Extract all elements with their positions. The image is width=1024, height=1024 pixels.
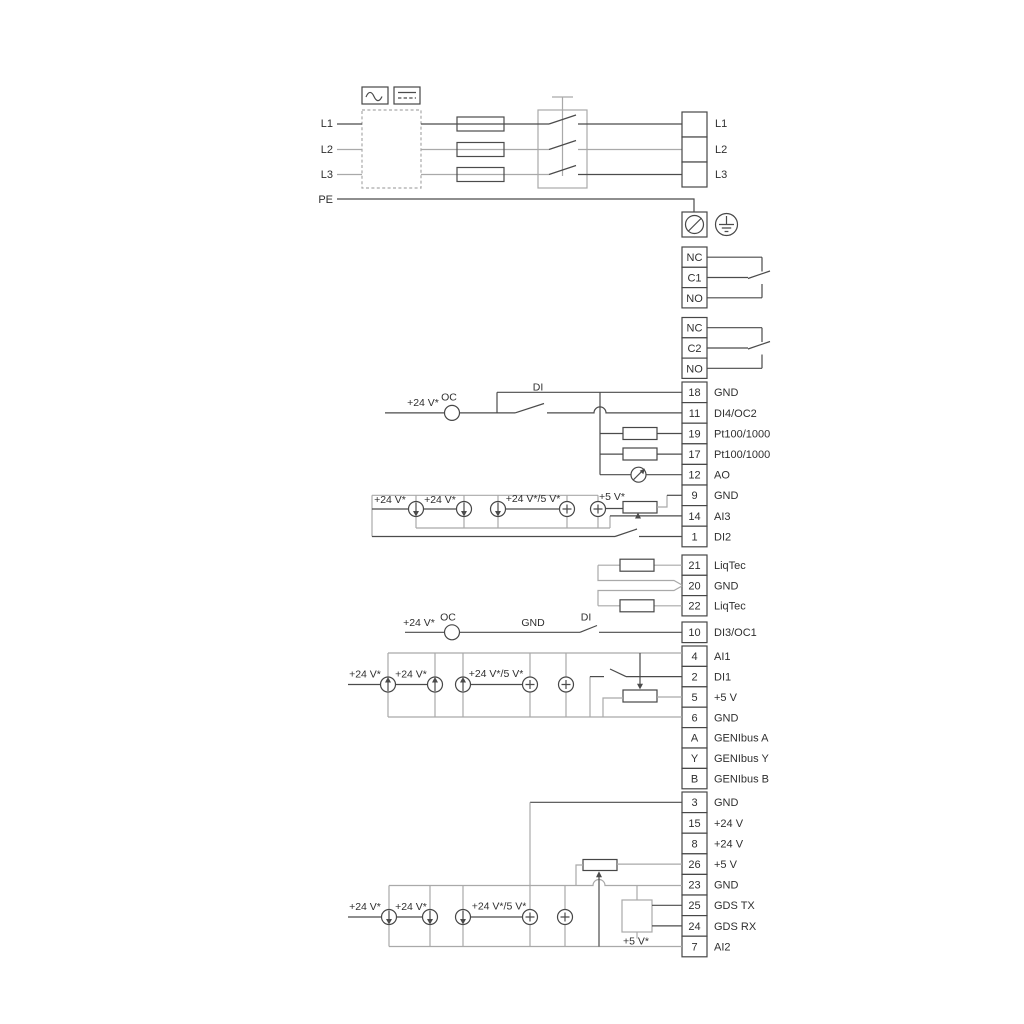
plus24-label: +24 V*	[403, 617, 435, 629]
terminal-number: 7	[691, 941, 697, 953]
terminal-label: DI1	[714, 672, 731, 684]
plus24-label: +24 V*	[374, 494, 406, 506]
current-source-icon	[457, 502, 472, 517]
terminal-box	[682, 137, 707, 162]
terminal-label: GND	[714, 490, 739, 502]
terminal-number: 20	[688, 580, 700, 592]
terminal-number: NC	[687, 252, 703, 264]
terminal-number: 5	[691, 692, 697, 704]
terminal-label: GND	[714, 580, 739, 592]
terminal-label: +24 V	[714, 818, 744, 830]
terminal-number: 10	[688, 627, 700, 639]
current-source-icon	[423, 910, 438, 925]
di-label: DI	[581, 612, 592, 624]
mains-terminal-block: L1 L2 L3	[682, 112, 727, 187]
terminal-label: GDS RX	[714, 921, 757, 933]
di-label: DI	[533, 382, 544, 394]
plus5-label: +5 V*	[623, 936, 649, 948]
terminal-label: AO	[714, 470, 730, 482]
rfi-filter-box	[362, 110, 421, 188]
terminal-number: 18	[688, 387, 700, 399]
terminal-number: A	[691, 733, 699, 745]
potentiometer-icon	[623, 690, 657, 702]
open-collector-icon	[445, 405, 460, 420]
plus24-5-label: +24 V*/5 V*	[506, 493, 561, 505]
terminal-label: L2	[715, 144, 727, 156]
terminal-label: LiqTec	[714, 601, 746, 613]
current-source-icon	[491, 502, 506, 517]
plus24-label: +24 V*	[395, 669, 427, 681]
plus24-label: +24 V*	[395, 901, 427, 913]
plus24-label: +24 V*	[349, 669, 381, 681]
terminal-label: GND	[714, 797, 739, 809]
terminal-number: 3	[691, 797, 697, 809]
voltage-source-icon	[560, 502, 575, 517]
terminal-number: 26	[688, 859, 700, 871]
terminal-number: 1	[691, 531, 697, 543]
ac-symbol-box	[362, 87, 388, 104]
plus24-label: +24 V*	[407, 397, 439, 409]
voltage-source-icon	[523, 677, 538, 692]
earth-ground-icon	[716, 214, 738, 236]
resistor-icon	[623, 428, 657, 440]
terminal-label: DI4/OC2	[714, 408, 757, 420]
terminal-label: L3	[715, 169, 727, 181]
voltage-source-icon	[523, 910, 538, 925]
terminal-number: 22	[688, 601, 700, 613]
terminal-label: AI3	[714, 511, 731, 523]
terminal-number: 8	[691, 838, 697, 850]
pe-screw-terminal-icon	[682, 212, 707, 237]
terminal-label: GND	[714, 880, 739, 892]
resistor-icon	[620, 559, 654, 571]
plus5-label: +5 V*	[599, 491, 625, 503]
terminal-label: GENIbus B	[714, 774, 769, 786]
resistor-icon	[623, 448, 657, 460]
terminal-number: NO	[686, 293, 703, 305]
terminal-number: 9	[691, 490, 697, 502]
analog-output-meter-icon	[631, 467, 646, 482]
plus24-5-label: +24 V*/5 V*	[469, 668, 524, 680]
terminal-box	[682, 112, 707, 137]
oc-label: OC	[440, 612, 456, 624]
input-label-pe: PE	[318, 194, 333, 206]
current-source-icon	[382, 910, 397, 925]
current-source-icon	[381, 677, 396, 692]
terminal-number: 24	[688, 921, 700, 933]
terminal-label: AI2	[714, 941, 731, 953]
open-collector-icon	[445, 625, 460, 640]
terminal-label: Pt100/1000	[714, 428, 770, 440]
terminal-number: 19	[688, 428, 700, 440]
dc-symbol-box	[394, 87, 420, 104]
terminal-box	[682, 162, 707, 187]
oc-label: OC	[441, 392, 457, 404]
input-label-l3: L3	[321, 169, 333, 181]
terminal-label: GENIbus A	[714, 733, 769, 745]
terminal-label: L1	[715, 118, 727, 130]
terminal-number: 6	[691, 712, 697, 724]
gds-sensor-box	[622, 900, 652, 932]
plus24-label: +24 V*	[424, 494, 456, 506]
current-source-icon	[456, 677, 471, 692]
terminal-number: 23	[688, 880, 700, 892]
plus24-label: +24 V*	[349, 901, 381, 913]
terminal-number: C1	[687, 273, 701, 285]
current-source-icon	[409, 502, 424, 517]
potentiometer-icon	[623, 502, 657, 514]
terminal-label: GND	[714, 387, 739, 399]
terminal-label: +24 V	[714, 838, 744, 850]
terminal-number: 2	[691, 672, 697, 684]
voltage-source-icon	[559, 677, 574, 692]
input-label-l2: L2	[321, 144, 333, 156]
terminal-label: DI3/OC1	[714, 627, 757, 639]
potentiometer-icon	[583, 860, 617, 871]
terminal-number: B	[691, 774, 698, 786]
terminal-number: 21	[688, 560, 700, 572]
current-source-icon	[428, 677, 443, 692]
terminal-number: NC	[687, 323, 703, 335]
terminal-label: AI1	[714, 651, 731, 663]
terminal-number: NO	[686, 363, 703, 375]
terminal-number: 15	[688, 818, 700, 830]
voltage-source-icon	[558, 910, 573, 925]
voltage-source-icon	[591, 502, 606, 517]
terminal-label: +5 V	[714, 692, 738, 704]
terminal-number: C2	[687, 343, 701, 355]
terminal-number: Y	[691, 753, 699, 765]
wiring-diagram: L1 L2 L3 PE	[0, 0, 1024, 1024]
terminal-label: LiqTec	[714, 560, 746, 572]
terminal-label: DI2	[714, 531, 731, 543]
terminal-label: GND	[714, 712, 739, 724]
page-background	[0, 0, 1024, 1024]
terminal-label: GDS TX	[714, 900, 755, 912]
terminal-number: 14	[688, 511, 700, 523]
gnd-label: GND	[521, 617, 545, 629]
terminal-label: Pt100/1000	[714, 449, 770, 461]
terminal-label: GENIbus Y	[714, 753, 769, 765]
terminal-number: 11	[689, 408, 700, 420]
resistor-icon	[620, 600, 654, 612]
terminal-number: 4	[691, 651, 697, 663]
terminal-label: +5 V	[714, 859, 738, 871]
input-label-l1: L1	[321, 118, 333, 130]
terminal-number: 17	[688, 449, 700, 461]
current-source-icon	[456, 910, 471, 925]
plus24-5-label: +24 V*/5 V*	[472, 901, 527, 913]
terminal-number: 12	[688, 470, 700, 482]
terminal-number: 25	[688, 900, 700, 912]
wiring-diagram-page: L1 L2 L3 PE	[0, 0, 1024, 1024]
